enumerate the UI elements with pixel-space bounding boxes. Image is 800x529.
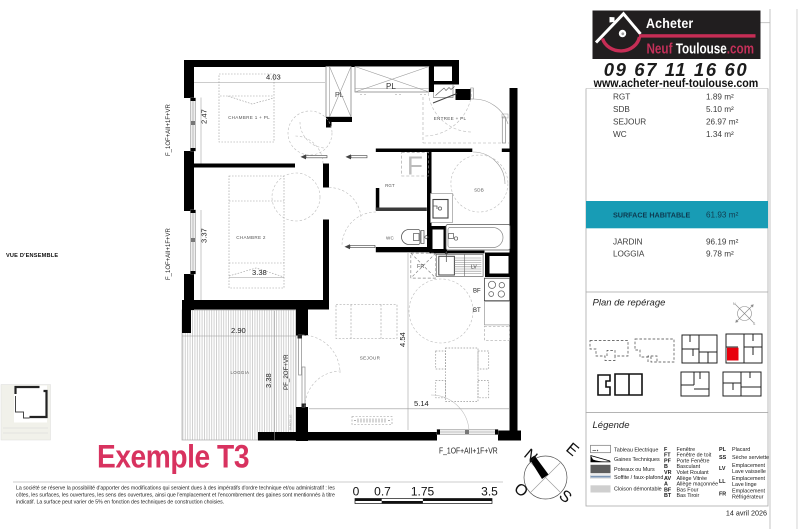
svg-text:VUE D'ENSEMBLE: VUE D'ENSEMBLE (6, 253, 58, 259)
svg-text:2.47: 2.47 (200, 109, 209, 124)
svg-text:Poteaux ou Murs: Poteaux ou Murs (614, 467, 655, 473)
svg-text:F_1OF+AII+1F+VR: F_1OF+AII+1F+VR (166, 227, 172, 280)
svg-text:RGT: RGT (385, 183, 395, 188)
svg-text:ENTREE + PL: ENTREE + PL (434, 116, 467, 121)
svg-text:14 avril 2026: 14 avril 2026 (726, 509, 767, 518)
svg-text:9.78 m²: 9.78 m² (706, 250, 734, 259)
svg-text:FR: FR (719, 492, 726, 498)
svg-text:1.89 m²: 1.89 m² (706, 93, 734, 102)
svg-text:SEJOUR: SEJOUR (613, 118, 646, 127)
svg-text:0: 0 (353, 485, 360, 499)
svg-text:Lave vaisselle: Lave vaisselle (732, 469, 766, 475)
svg-text:3.38: 3.38 (264, 373, 273, 388)
svg-text:La société se réserve la possi: La société se réserve la possibilité d'a… (16, 486, 335, 492)
svg-text:SDB: SDB (613, 105, 630, 114)
svg-text:5.14: 5.14 (414, 399, 429, 408)
svg-text:2.90: 2.90 (231, 326, 246, 335)
svg-text:61.93 m²: 61.93 m² (706, 211, 739, 220)
svg-text:WC: WC (386, 236, 394, 241)
svg-text:LOGGIA: LOGGIA (231, 370, 250, 375)
svg-text:SEJOUR: SEJOUR (360, 356, 381, 361)
svg-text:F: F (407, 151, 423, 181)
svg-text:3.37: 3.37 (200, 228, 209, 243)
svg-text:LL: LL (719, 479, 726, 485)
svg-text:Gaines Techniques: Gaines Techniques (614, 457, 660, 463)
svg-text:indicatif. La surface peut var: indicatif. La surface peut varier de 5% … (16, 500, 224, 506)
svg-text:Acheter: Acheter (646, 15, 693, 31)
svg-text:26.97 m²: 26.97 m² (706, 118, 739, 127)
svg-text:JARDIN: JARDIN (613, 238, 643, 247)
svg-text:BF: BF (473, 289, 481, 295)
svg-text:4.03: 4.03 (266, 73, 281, 82)
svg-text:Lave linge: Lave linge (732, 482, 757, 488)
svg-text:SURFACE HABITABLE: SURFACE HABITABLE (613, 211, 691, 220)
svg-text:Exemple T3: Exemple T3 (97, 440, 249, 475)
svg-text:Réfrigérateur: Réfrigérateur (732, 495, 764, 501)
svg-text:3.5: 3.5 (481, 485, 498, 499)
svg-text:4.54: 4.54 (398, 332, 407, 347)
svg-text:F_1OF+AII+1F+VR: F_1OF+AII+1F+VR (439, 446, 498, 456)
svg-text:Plan de repérage: Plan de repérage (593, 298, 666, 309)
svg-text:F_1OF+AII+1F+VR: F_1OF+AII+1F+VR (166, 103, 172, 156)
svg-text:RGT: RGT (613, 93, 630, 102)
svg-text:WC: WC (613, 130, 627, 139)
svg-text:SDB: SDB (474, 188, 484, 193)
svg-text:PL: PL (719, 447, 727, 453)
svg-text:1.34 m²: 1.34 m² (706, 130, 734, 139)
svg-text:PL: PL (386, 82, 396, 91)
svg-text:LV: LV (471, 265, 477, 271)
svg-text:PARCELLE: PARCELLE (289, 415, 293, 430)
svg-text:PL: PL (335, 92, 344, 99)
svg-text:CHAMBRE 1 + PL: CHAMBRE 1 + PL (228, 115, 270, 120)
svg-text:FR: FR (417, 264, 424, 270)
svg-text:Cloison démontable: Cloison démontable (614, 487, 662, 493)
svg-text:3.38: 3.38 (252, 268, 267, 277)
svg-text:96.19 m²: 96.19 m² (706, 238, 739, 247)
svg-text:Tableau Electrique: Tableau Electrique (614, 447, 658, 453)
svg-text:côtes, les surfaces, les ouver: côtes, les surfaces, les ouvertures, les… (16, 493, 335, 499)
svg-text:Légende: Légende (593, 420, 630, 431)
svg-text:LV: LV (719, 466, 726, 472)
svg-text:CHAMBRE 2: CHAMBRE 2 (236, 235, 266, 240)
svg-text:SS: SS (719, 455, 727, 461)
svg-text:1.75: 1.75 (411, 485, 435, 499)
svg-text:LOGGIA: LOGGIA (613, 250, 645, 259)
svg-text:BT: BT (473, 308, 481, 314)
svg-text:Neuf Toulouse.com: Neuf Toulouse.com (646, 40, 754, 57)
svg-text:Sèche serviette: Sèche serviette (732, 455, 769, 461)
svg-text:5.10 m²: 5.10 m² (706, 105, 734, 114)
svg-text:Placard: Placard (732, 447, 750, 453)
svg-text:Bas Tiroir: Bas Tiroir (677, 493, 700, 499)
svg-text:Soffite / faux-plafond: Soffite / faux-plafond (614, 475, 663, 481)
svg-text:PF_2OF+VR: PF_2OF+VR (283, 354, 290, 390)
svg-text:BT: BT (664, 493, 672, 499)
svg-text:0.7: 0.7 (374, 485, 391, 499)
